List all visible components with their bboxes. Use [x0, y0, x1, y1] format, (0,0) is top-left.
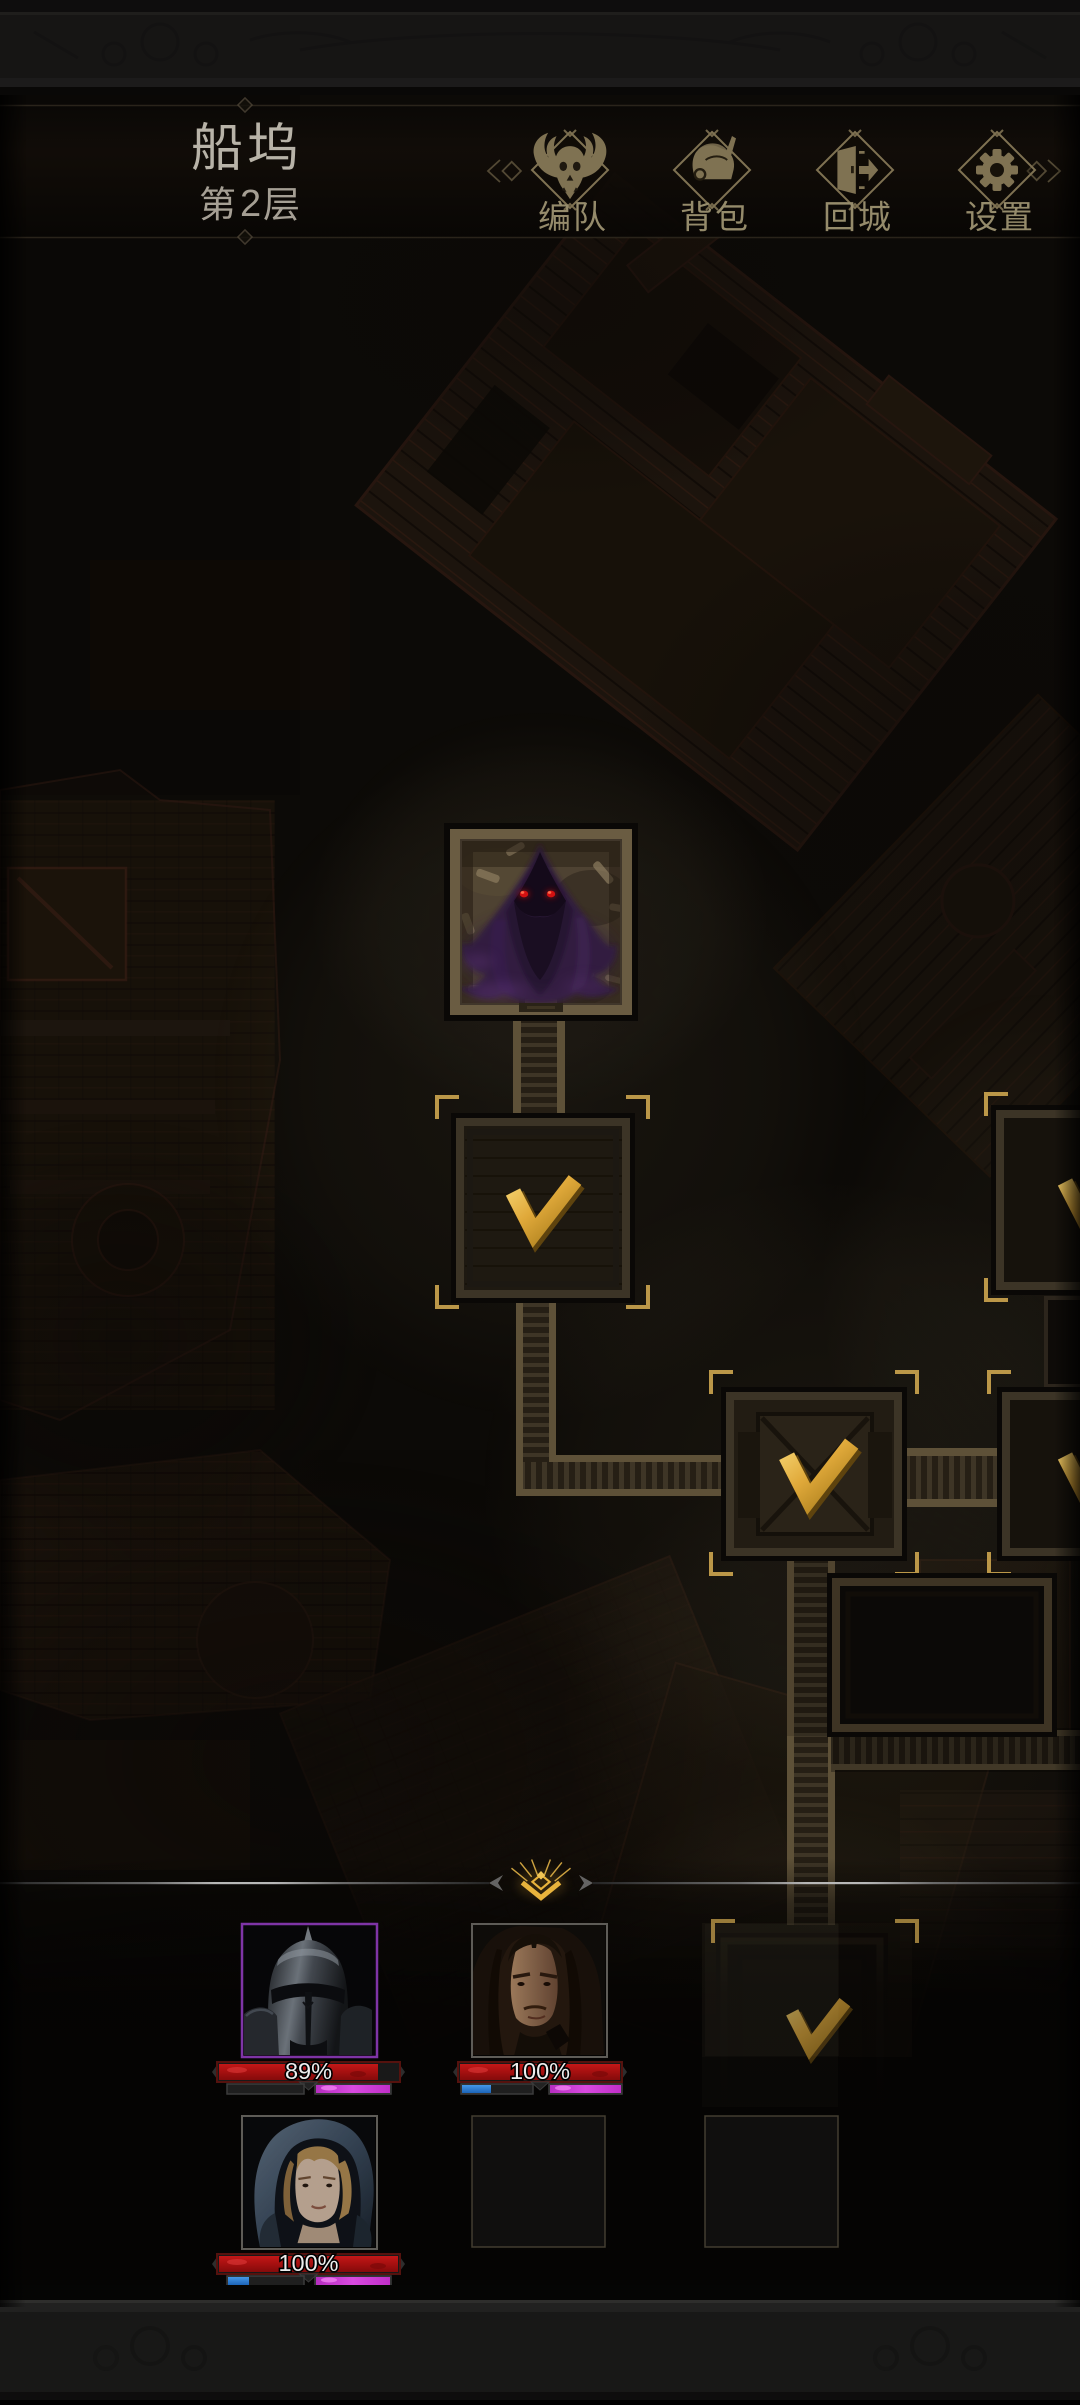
svg-text:89%: 89% [285, 2058, 332, 2084]
svg-text:100%: 100% [510, 2058, 570, 2084]
svg-text:2: 2 [240, 183, 261, 225]
svg-text:100%: 100% [278, 2250, 338, 2276]
